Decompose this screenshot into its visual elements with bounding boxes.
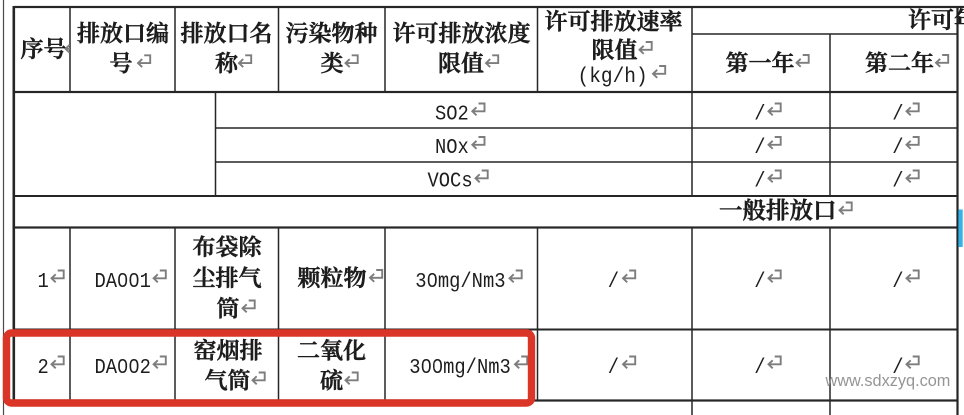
svg-text:/: / [754,136,765,160]
svg-text:VOCs: VOCs [428,170,473,194]
svg-text:/: / [754,270,765,294]
svg-text:/: / [892,136,903,160]
svg-text:/: / [754,356,765,380]
svg-text:SO2: SO2 [435,103,469,127]
svg-text:/: / [608,270,619,294]
svg-text:/: / [892,270,903,294]
svg-text:(kg/h): (kg/h) [578,66,648,89]
svg-text:30mg/Nm3: 30mg/Nm3 [415,270,505,294]
svg-text:/: / [892,170,903,194]
svg-text:2: 2 [38,356,49,380]
svg-text:www.sdxzyq.com: www.sdxzyq.com [825,372,951,390]
svg-text:/: / [892,103,903,127]
svg-text:NOx: NOx [435,136,469,160]
svg-text:1: 1 [38,270,49,294]
svg-text:/: / [754,103,765,127]
svg-text:/: / [754,170,765,194]
svg-text:/: / [608,356,619,380]
